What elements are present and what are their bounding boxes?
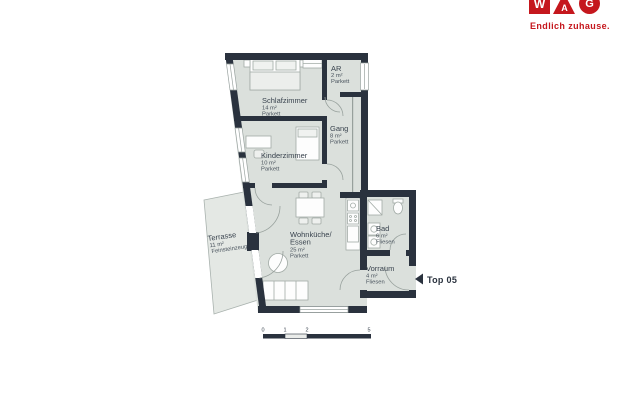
gang-east-line — [352, 97, 353, 192]
room-floor: Fliesen — [366, 280, 385, 286]
wall-gang-west — [322, 116, 327, 164]
chair — [299, 192, 308, 198]
room-floor: Parkett — [261, 167, 280, 173]
room-name: Vorraum — [366, 264, 394, 273]
floorplan-svg: Schlafzimmer 14 m² Parkett AR 2 m² Parke… — [0, 0, 620, 410]
entrance-arrow-icon — [415, 274, 423, 285]
wall-right — [361, 89, 368, 190]
scale-tick: 1 — [283, 328, 286, 334]
wall-bad-vorraum-a — [367, 250, 390, 256]
wall-terrace-pillar — [247, 232, 259, 251]
wall-vorraum-south — [367, 291, 416, 298]
room-name: Schlafzimmer — [262, 96, 308, 105]
room-floor: Parkett — [262, 112, 281, 118]
burner — [355, 220, 357, 222]
burner — [355, 216, 357, 218]
chair — [312, 218, 321, 224]
room-floor: Parkett — [290, 254, 309, 260]
unit-marker: Top 05 — [415, 274, 457, 286]
wall-bad-north — [361, 190, 416, 197]
wall-kitchen-stub — [340, 192, 361, 198]
scale-bar: 0 1 2 5 — [261, 328, 371, 339]
burner — [350, 220, 352, 222]
burner — [350, 216, 352, 218]
wall-kinder-south-b — [272, 183, 327, 188]
kitchen-sink — [348, 200, 359, 211]
desk — [246, 136, 271, 148]
chair — [312, 192, 321, 198]
pillow — [253, 61, 273, 70]
room-floor: Fliesen — [376, 240, 395, 246]
couch — [263, 281, 308, 300]
scale-segment-light — [285, 334, 307, 339]
room-name: Gang — [330, 124, 348, 133]
wall-vorraum-west-low — [360, 290, 367, 298]
room-floor: Parkett — [331, 79, 350, 85]
blanket — [250, 72, 300, 90]
room-floor: Parkett — [330, 140, 349, 146]
scale-tick: 2 — [305, 328, 308, 334]
wall-top — [225, 53, 368, 60]
room-name: Essen — [290, 238, 311, 247]
scale-segment-dark — [263, 334, 285, 339]
scale-tick: 0 — [261, 328, 264, 334]
pillow — [276, 61, 296, 70]
room-name: AR — [331, 64, 342, 73]
round-table — [269, 254, 288, 273]
wall-ar-south — [340, 92, 361, 97]
unit-label: Top 05 — [427, 275, 457, 285]
kitchen-cabinet — [348, 226, 359, 242]
wall-bad-vorraum-b — [406, 250, 409, 256]
scale-tick: 5 — [367, 328, 370, 334]
floorplan-page: W A G Endlich zuhause. — [0, 0, 620, 410]
toilet — [394, 202, 403, 214]
room-name: Kinderzimmer — [261, 151, 308, 160]
scale-segment-dark — [307, 334, 371, 339]
nightstand — [244, 60, 250, 67]
chair — [299, 218, 308, 224]
wall-east-upper — [409, 190, 416, 266]
pillow — [298, 129, 317, 137]
dining-table — [296, 198, 324, 217]
wall-bad-west — [360, 190, 367, 270]
cooktop — [348, 213, 359, 224]
room-name: Bad — [376, 224, 389, 233]
wall-ar-west — [322, 57, 327, 100]
